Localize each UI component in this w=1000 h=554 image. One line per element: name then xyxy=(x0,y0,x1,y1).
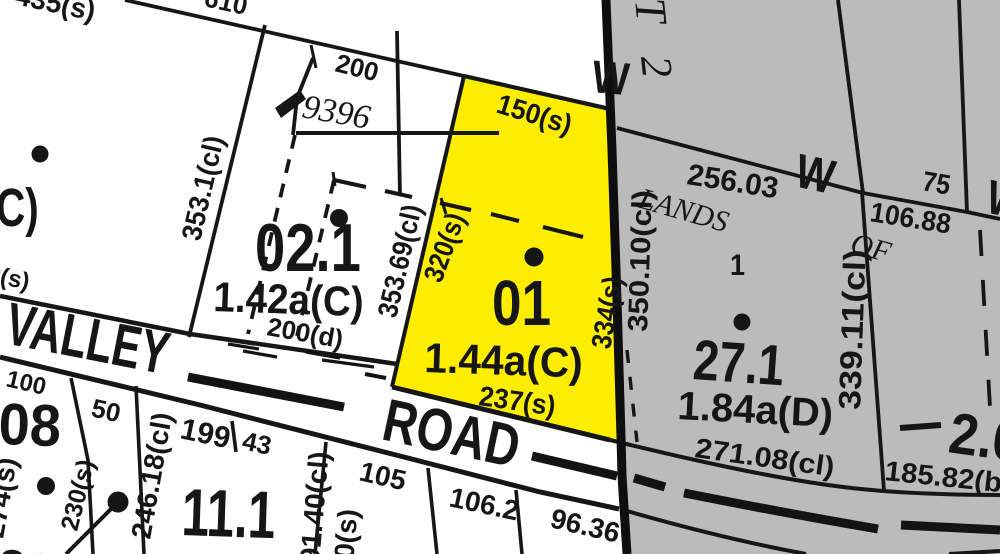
svg-text:T 2: T 2 xyxy=(625,0,682,80)
svg-text:08: 08 xyxy=(0,392,62,460)
svg-text:75: 75 xyxy=(920,165,953,201)
svg-text:2.0: 2.0 xyxy=(945,400,1000,475)
svg-text:1.84a(D): 1.84a(D) xyxy=(677,384,835,436)
svg-text:30(s): 30(s) xyxy=(327,508,364,554)
svg-text:01: 01 xyxy=(492,268,551,339)
svg-text:43: 43 xyxy=(240,426,275,461)
svg-text:1.44a(C): 1.44a(C) xyxy=(424,334,584,386)
svg-text:1: 1 xyxy=(730,249,745,283)
svg-text:339.11(cl): 339.11(cl) xyxy=(833,249,873,411)
svg-text:a(C): a(C) xyxy=(0,178,39,238)
svg-text:W: W xyxy=(590,51,632,106)
svg-text:11.1: 11.1 xyxy=(180,476,276,553)
